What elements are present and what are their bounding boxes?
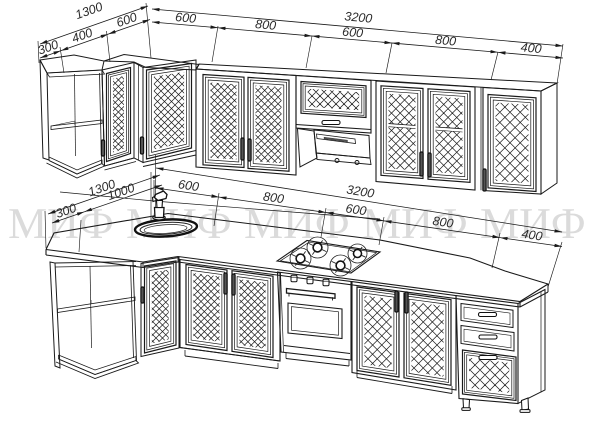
svg-text:400: 400 — [520, 40, 542, 56]
svg-text:400: 400 — [521, 227, 544, 244]
svg-text:600: 600 — [345, 201, 368, 218]
svg-text:600: 600 — [177, 177, 200, 194]
svg-text:800: 800 — [255, 17, 277, 33]
svg-text:3200: 3200 — [344, 9, 373, 25]
svg-text:800: 800 — [432, 214, 455, 231]
svg-text:МИФ: МИФ — [244, 199, 350, 248]
svg-text:800: 800 — [262, 189, 285, 206]
svg-text:600: 600 — [342, 25, 364, 41]
svg-text:800: 800 — [435, 33, 457, 49]
svg-text:600: 600 — [175, 10, 197, 26]
